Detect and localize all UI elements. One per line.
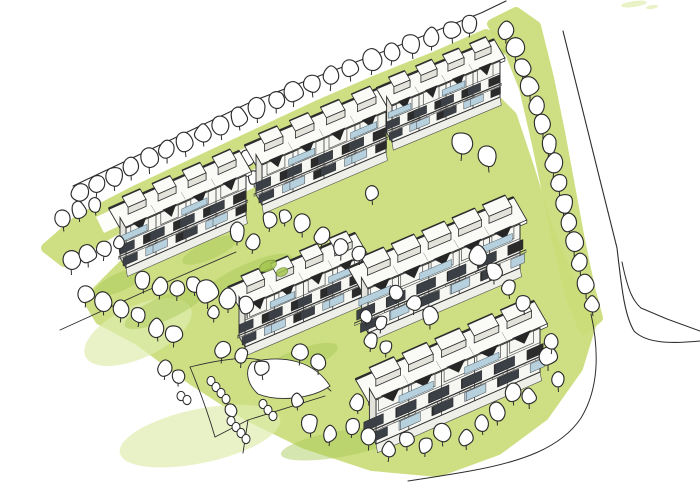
tree — [360, 310, 372, 324]
tree — [269, 92, 285, 109]
tree — [534, 114, 550, 134]
tree — [363, 49, 382, 71]
tree — [352, 246, 365, 261]
tree — [194, 124, 211, 142]
tree — [89, 198, 101, 213]
tree — [158, 360, 172, 376]
tree — [170, 281, 185, 296]
architectural-site-sketch — [0, 0, 700, 495]
tree — [302, 414, 318, 433]
tree — [89, 175, 105, 192]
tree — [235, 348, 248, 363]
tree — [552, 372, 564, 387]
tree — [231, 107, 247, 127]
tree — [230, 222, 244, 242]
tree — [248, 97, 265, 118]
tree — [424, 27, 439, 46]
tree — [123, 157, 138, 176]
tree — [452, 133, 473, 154]
tree — [292, 344, 309, 360]
wash-top-right-dash-2 — [646, 4, 658, 10]
tree — [384, 43, 400, 61]
tree — [311, 354, 326, 370]
tree — [346, 418, 359, 434]
tree — [566, 232, 584, 252]
tree — [389, 285, 403, 300]
tree — [434, 423, 451, 441]
tree — [135, 271, 149, 289]
tree — [556, 195, 573, 214]
tree — [542, 134, 556, 154]
tree — [516, 296, 530, 312]
tree — [544, 334, 558, 350]
tree — [380, 341, 392, 354]
tree — [323, 66, 339, 84]
tree — [113, 300, 129, 318]
shrub — [269, 411, 277, 420]
tree — [284, 82, 303, 102]
tree — [176, 132, 193, 152]
tree — [96, 241, 111, 256]
tree — [239, 296, 253, 314]
tree — [375, 316, 387, 330]
shrub — [183, 395, 191, 404]
tree — [303, 75, 320, 92]
tree — [172, 370, 184, 383]
tree — [506, 38, 524, 57]
tree — [475, 415, 488, 432]
tree — [114, 236, 125, 249]
tree — [263, 212, 277, 228]
tree — [505, 383, 521, 402]
tree — [443, 22, 460, 39]
tree — [342, 60, 359, 77]
tree — [158, 140, 174, 158]
tree — [402, 35, 419, 54]
tree — [462, 15, 476, 33]
road-edge-inner — [622, 262, 700, 331]
tree — [361, 428, 376, 445]
site-plan-drawing — [0, 0, 700, 495]
tree — [141, 148, 159, 168]
shrub — [222, 394, 230, 403]
tree — [106, 168, 123, 187]
tree — [55, 210, 70, 227]
tree — [78, 286, 95, 303]
tree — [72, 201, 87, 218]
tree — [400, 432, 415, 447]
tree — [551, 174, 567, 191]
tree — [95, 292, 112, 312]
tree — [212, 116, 229, 135]
shrub — [242, 434, 250, 443]
tree — [165, 326, 182, 343]
tree — [71, 184, 89, 201]
wash-top-right-dash-1 — [621, 0, 648, 9]
tree — [63, 251, 81, 270]
tree — [561, 213, 576, 232]
